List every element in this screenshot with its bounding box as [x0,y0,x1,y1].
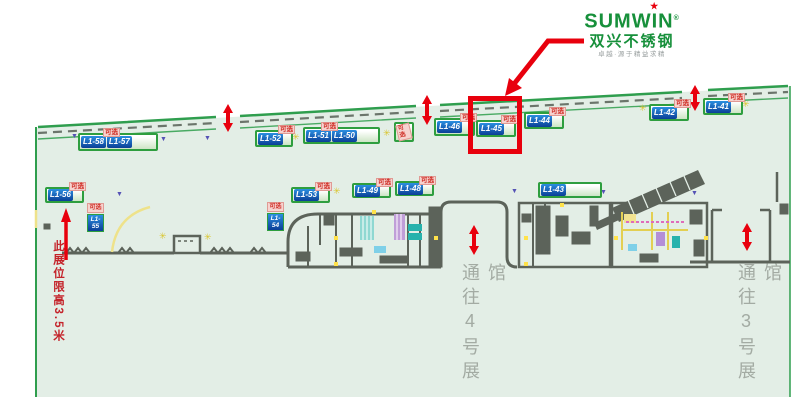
booth-L1-45[interactable]: L1-45 可选 [476,120,516,137]
booth-L1-58-57[interactable]: L1-58 可选 L1-57 [78,133,158,151]
utility-icon: ✳ [333,187,341,196]
utility-icon: ✳ [639,104,647,113]
booth-L1-41[interactable]: L1-41 可选 [703,98,743,115]
height-limit-note: 此展位限高3.5米 [50,240,66,343]
triangle-marker-icon: ▼ [691,190,698,197]
booth-label[interactable]: L1-41 [706,101,731,113]
booth-L1-53[interactable]: L1-53 可选 [291,187,330,203]
utility-icon: ✳ [383,129,391,138]
booth-label[interactable]: L1-58 [81,136,106,148]
booth-L1-51-50[interactable]: L1-51 可选 L1-50 [303,127,380,144]
booth-L1-54[interactable]: L1- 54 [267,213,284,231]
star-icon: ★ [650,2,659,11]
triangle-marker-icon: ▼ [204,135,211,142]
corridor-hall4-label: 通往4号展馆 [457,263,509,406]
booth-label-line2: 54 [268,222,283,229]
brand-name: ★SUMWIN® [584,8,680,33]
booth-L1-42[interactable]: L1-42 可选 [649,104,689,121]
optional-tag: 可选 [278,125,295,134]
optional-stamp: 可选 [395,123,412,142]
booth-label-line2: 55 [88,223,103,230]
booth-L1-46[interactable]: L1-46 可选 [434,118,475,136]
triangle-marker-icon: ▼ [116,191,123,198]
booth-label[interactable]: L1-42 [652,107,677,119]
booth-L1-44[interactable]: L1-44 可选 [524,112,564,129]
utility-icon: ✳ [292,133,300,142]
optional-tag: 可选 [376,178,393,187]
reserved-marker-box[interactable]: 可选 [394,122,414,142]
optional-tag: 可选 [321,122,338,131]
booth-label[interactable]: L1-51 [306,130,331,142]
optional-tag: 可选 [728,93,745,102]
booth-label[interactable]: L1-50 [332,130,357,142]
booth-label[interactable]: L1-57 [107,136,132,148]
optional-tag: 可选 [549,107,566,116]
booth-L1-49[interactable]: L1-49 可选 [352,183,391,198]
booth-label[interactable]: L1-52 [258,133,283,145]
corridor-hall3-label: 通往3号展馆 [733,263,785,406]
optional-tag: 可选 [315,182,332,191]
booth-label[interactable]: L1-46 [437,121,462,133]
optional-tag: 可选 [87,203,104,213]
booth-L1-52[interactable]: L1-52 可选 [255,130,293,147]
booth-label-line1: L1- [268,215,283,222]
logo: ★SUMWIN® 双兴不锈钢 卓越·源于精益求精 [566,8,698,59]
optional-tag: 可选 [267,202,284,212]
optional-tag: 可选 [419,176,436,185]
triangle-marker-icon: ▼ [71,133,78,140]
booth-L1-43[interactable]: L1-43 [538,182,602,198]
registered-mark: ® [674,15,680,22]
triangle-marker-icon: ▼ [160,136,167,143]
optional-tag: 可选 [103,128,120,137]
optional-tag: 可选 [501,115,518,124]
utility-icon: ✳ [204,233,212,242]
optional-tag: 可选 [460,113,477,122]
booth-label[interactable]: L1-45 [479,123,504,135]
utility-icon: ✳ [159,232,167,241]
booth-L1-48[interactable]: L1-48 可选 [395,181,434,196]
booth-label[interactable]: L1-43 [541,184,566,196]
floor-plan-canvas [0,0,800,406]
brand-slogan: 卓越·源于精益求精 [566,50,698,59]
booth-label[interactable]: L1-44 [527,115,552,127]
booth-label-line1: L1- [88,216,103,223]
optional-tag: 可选 [69,182,86,191]
exhibition-floor-plan: ★SUMWIN® 双兴不锈钢 卓越·源于精益求精 L1-58 可选 L1-57 … [0,0,800,406]
optional-tag: 可选 [674,99,691,108]
brand-name-cn: 双兴不锈钢 [566,33,698,50]
booth-L1-55[interactable]: L1- 55 [87,214,104,232]
triangle-marker-icon: ▼ [511,188,518,195]
booth-L1-56[interactable]: L1-56 可选 [45,187,84,203]
